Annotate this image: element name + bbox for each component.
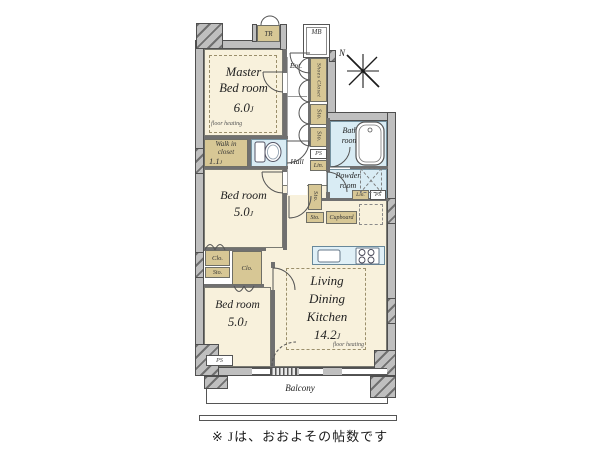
wall-column-hatch	[195, 148, 204, 174]
bedroom-2-size-value: 5.0	[234, 205, 250, 219]
master-bedroom-size-unit: J	[250, 105, 254, 114]
master-bedroom-size-value: 6.0	[234, 100, 250, 115]
ldk-name-line3: Kitchen	[277, 310, 377, 324]
storage-label: Sto.	[213, 270, 222, 276]
pipe-space-label: PS	[375, 192, 381, 198]
bedroom-2-size-unit: J	[250, 209, 253, 218]
bedroom-3-size-value: 5.0	[228, 315, 244, 329]
powder-room-name-line1: Powder	[328, 172, 368, 180]
wall-column-hatch	[195, 252, 204, 278]
lower-slab-edge	[199, 415, 397, 421]
closet-label: Clo.	[241, 265, 252, 272]
cupboard-label: Cupboard	[329, 215, 353, 221]
ldk-floor-heating-note: floor heating	[318, 342, 364, 348]
wall-segment	[280, 24, 287, 50]
pipe-space-box: PS	[370, 190, 386, 200]
bedroom-3-name: Bed room	[204, 299, 271, 311]
ldk-size: 14.2J	[277, 328, 377, 342]
master-bedroom-name-line1: Master	[204, 66, 283, 79]
kitchen-counter	[312, 246, 385, 265]
window-opening	[252, 368, 270, 375]
powder-room-name-line2: room	[328, 182, 368, 190]
walk-in-closet-size-unit: J	[220, 160, 222, 166]
storage-label: Sto.	[316, 109, 322, 120]
walk-in-closet-line2: closet	[218, 149, 234, 157]
trunk-room-box: TR	[257, 25, 280, 42]
entrance-name: Ent.	[286, 62, 306, 70]
partition-wall	[271, 262, 275, 268]
storage-box: Sto.	[310, 104, 327, 125]
ldk-size-unit: J	[337, 332, 341, 341]
pipe-space-label: PS	[216, 358, 223, 364]
partition-wall	[283, 93, 287, 138]
wall-column-hatch	[196, 23, 223, 49]
sliding-shutter-marks	[270, 367, 297, 376]
storage-box: Sto.	[306, 212, 324, 223]
bedroom-3-size-unit: J	[244, 319, 247, 328]
floor-plan: TR MB Shoes Closet Sto. Sto. PS Lin. Sto…	[0, 0, 600, 450]
balcony-side-wall	[204, 376, 228, 389]
room-toilet	[251, 139, 287, 167]
hall-name: Hall	[285, 158, 309, 166]
bedroom-2-name: Bed room	[204, 189, 283, 202]
bedroom-3-size: 5.0J	[204, 316, 271, 329]
pipe-space-box: PS	[310, 149, 327, 159]
partition-wall	[248, 139, 251, 167]
walk-in-closet-size-value: 1.1	[209, 156, 220, 166]
partition-wall	[283, 193, 287, 250]
trunk-room-label: TR	[264, 30, 272, 38]
linen-label: Lin.	[356, 192, 365, 198]
wall-column-hatch	[387, 298, 396, 324]
storage-label: Sto.	[316, 131, 322, 142]
linen-label: Lin.	[314, 163, 324, 169]
ldk-size-value: 14.2	[314, 327, 337, 342]
walk-in-closet-box: Walk in closet 1.1J	[204, 139, 248, 167]
wall-column-hatch	[387, 198, 396, 224]
closet-label: Clo.	[212, 255, 223, 262]
storage-box: Sto.	[308, 184, 322, 210]
compass-north-label: N	[336, 49, 348, 58]
window-opening	[342, 368, 387, 375]
trunk-room-door-arc	[261, 16, 279, 25]
walk-in-closet-size: 1.1J	[209, 156, 222, 166]
hall-floor	[287, 57, 307, 195]
balcony-name: Balcony	[248, 384, 352, 393]
pipe-space-label: PS	[315, 151, 322, 157]
master-bedroom-name-line2: Bed room	[204, 82, 283, 95]
ldk-name-line1: Living	[277, 274, 377, 288]
shoes-closet-box: Shoes Closet	[310, 58, 327, 102]
refrigerator-space	[359, 204, 383, 225]
closet-box: Clo.	[205, 250, 230, 266]
cupboard-box: Cupboard	[326, 211, 357, 224]
storage-box: Sto.	[205, 267, 230, 278]
wall-segment	[195, 40, 204, 376]
caption-note: ※ Jは、おおよその帖数です	[150, 426, 450, 445]
partition-wall	[271, 290, 275, 367]
storage-label: Sto.	[310, 215, 319, 221]
master-floor-heating-note: floor heating	[211, 121, 253, 127]
linen-box: Lin.	[310, 160, 327, 171]
wall-segment	[387, 112, 396, 376]
storage-box: Sto.	[310, 127, 327, 147]
shoes-closet-label: Shoes Closet	[316, 63, 322, 97]
bathroom-name-line1: Bath	[330, 127, 370, 135]
bedroom-2-size: 5.0J	[204, 206, 283, 219]
partition-wall	[283, 169, 287, 172]
partition-wall	[350, 166, 388, 169]
meter-box-label: MB	[311, 28, 321, 36]
storage-label: Sto.	[312, 191, 318, 202]
pipe-space-box: PS	[206, 355, 233, 366]
wall-segment	[327, 112, 396, 121]
window-opening	[299, 368, 323, 375]
ldk-name-line2: Dining	[277, 292, 377, 306]
closet-box: Clo.	[232, 251, 262, 285]
bathroom-name-line2: room	[330, 137, 370, 145]
master-bedroom-size: 6.0J	[204, 101, 283, 115]
meter-box: MB	[303, 24, 330, 58]
linen-box: Lin.	[352, 190, 369, 200]
balcony-side-wall	[370, 376, 396, 398]
wall-column-hatch	[329, 50, 336, 62]
entrance-step-line	[287, 96, 307, 97]
